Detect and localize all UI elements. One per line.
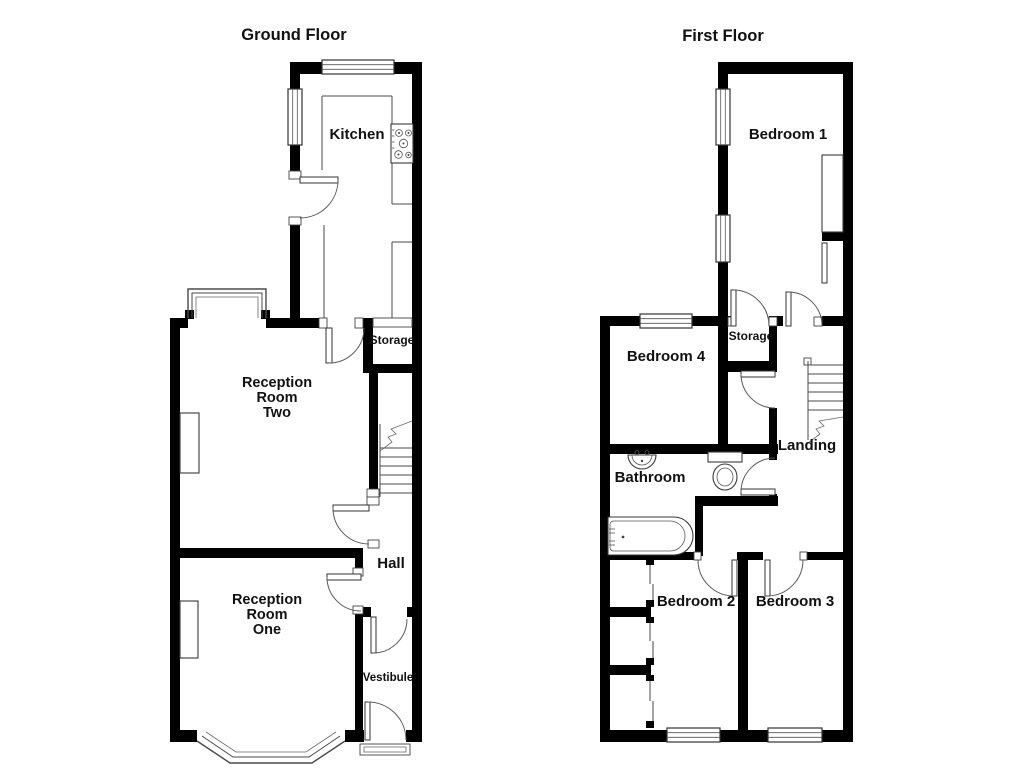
room-label-reception-one: Reception Room One: [232, 592, 302, 638]
svg-text:One: One: [253, 622, 281, 638]
room-label-bathroom: Bathroom: [615, 469, 686, 486]
bathtub-icon: [608, 517, 693, 555]
bedroom1-door: [786, 292, 822, 326]
bedroom1-upper-window: [716, 89, 730, 145]
bedroom1-open-door-leaf: [822, 243, 827, 283]
room-label-vestibule: Vestibule: [363, 672, 414, 684]
room-label-bedroom3: Bedroom 3: [756, 593, 834, 610]
kitchen-door: [289, 171, 338, 225]
reception-one-door: [327, 568, 363, 614]
closet-doors: [646, 558, 654, 728]
bedroom4-door: [741, 371, 775, 408]
svg-text:Room: Room: [246, 607, 287, 623]
svg-text:Reception: Reception: [232, 592, 302, 608]
svg-text:Room: Room: [256, 390, 297, 406]
bedroom1-lower-window: [716, 215, 730, 262]
reception-one-bay-window: [197, 732, 345, 763]
room-label-landing: Landing: [778, 437, 836, 454]
toilet-icon: [708, 452, 742, 490]
ground-floor-plan: Ground Floor: [170, 26, 422, 763]
first-floor-title: First Floor: [682, 27, 764, 45]
room-label-storage-ground: Storage: [370, 333, 415, 347]
reception-two-kitchen-door: [319, 318, 364, 363]
room-label-storage-first: Storage: [729, 329, 774, 343]
bedroom3-window: [768, 728, 822, 742]
ground-floor-title: Ground Floor: [241, 26, 347, 44]
svg-text:Reception: Reception: [242, 375, 312, 391]
room-label-bedroom1: Bedroom 1: [749, 126, 827, 143]
reception-two-hall-door: [333, 505, 379, 548]
stove-icon: [391, 124, 413, 163]
front-door: [360, 702, 410, 755]
reception-two-bay-window: [188, 289, 266, 318]
room-label-kitchen: Kitchen: [329, 126, 384, 143]
bedroom2-window: [667, 728, 720, 742]
vestibule-door: [371, 617, 407, 653]
bedroom3-door: [765, 552, 807, 596]
bedroom4-window: [640, 314, 692, 328]
floorplan-svg: Ground Floor: [0, 0, 1024, 768]
storage-door-first: [728, 290, 777, 326]
bedroom1-wardrobe-alcove: [822, 155, 843, 232]
storage-opening: [373, 318, 412, 327]
room-label-reception-two: Reception Room Two: [242, 375, 312, 421]
first-floor-stairs: [804, 358, 843, 443]
first-floor-walls: [600, 62, 853, 742]
floorplan-page: Ground Floor: [0, 0, 1024, 768]
reception-two-chimney-breast: [180, 413, 199, 473]
first-floor-plan: First Floor: [600, 27, 853, 742]
svg-text:Two: Two: [263, 405, 291, 421]
reception-one-chimney-breast: [180, 601, 198, 658]
bedroom2-door: [694, 552, 737, 596]
room-label-hall: Hall: [377, 555, 405, 572]
room-label-bedroom2: Bedroom 2: [657, 593, 735, 610]
room-label-bedroom4: Bedroom 4: [627, 348, 706, 365]
kitchen-top-window: [322, 60, 394, 74]
bathroom-door: [741, 458, 775, 495]
kitchen-side-window: [288, 89, 302, 145]
